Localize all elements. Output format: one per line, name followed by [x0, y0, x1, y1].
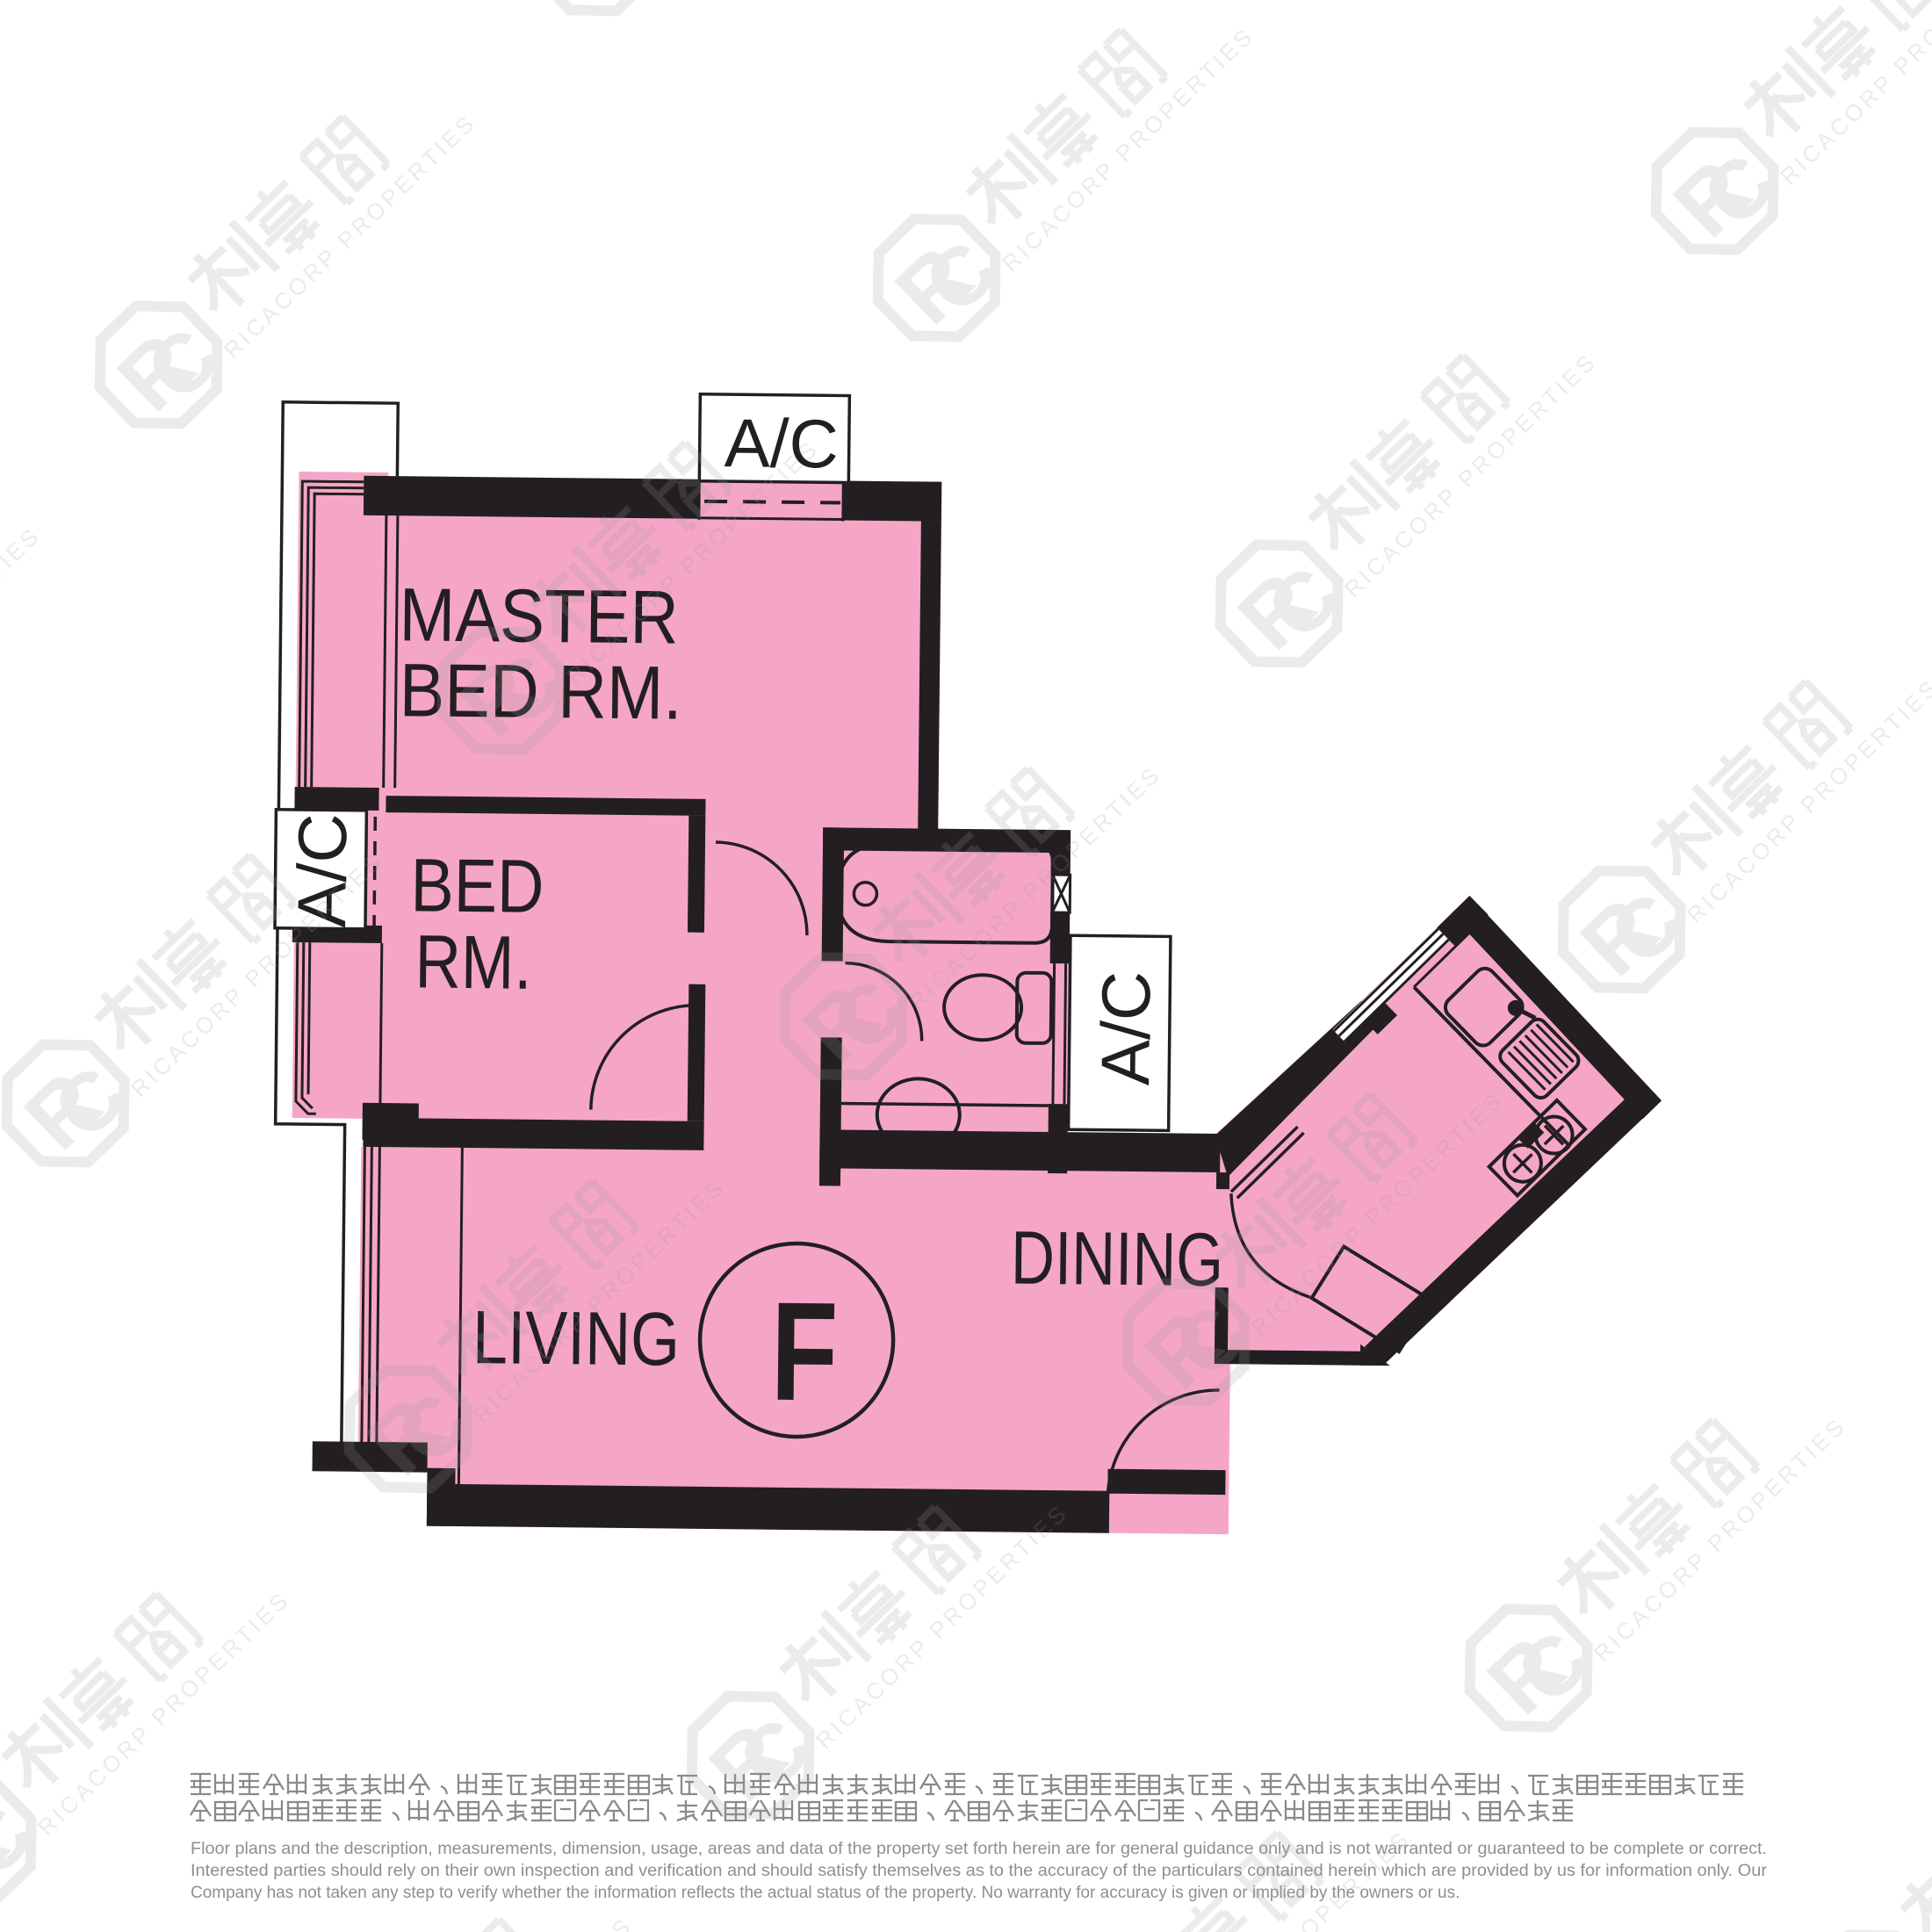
svg-text:Floor plans and the descriptio: Floor plans and the description, measure…: [191, 1840, 1767, 1858]
svg-text:Company has not taken any step: Company has not taken any step to verify…: [191, 1884, 1460, 1902]
svg-text:Interested parties should rely: Interested parties should rely on their …: [191, 1862, 1768, 1880]
svg-text:F: F: [770, 1273, 839, 1431]
svg-text:A/C: A/C: [1086, 970, 1164, 1085]
svg-text:BED: BED: [410, 843, 544, 929]
svg-text:RM.: RM.: [415, 919, 532, 1005]
svg-text:DINING: DINING: [1011, 1216, 1224, 1303]
